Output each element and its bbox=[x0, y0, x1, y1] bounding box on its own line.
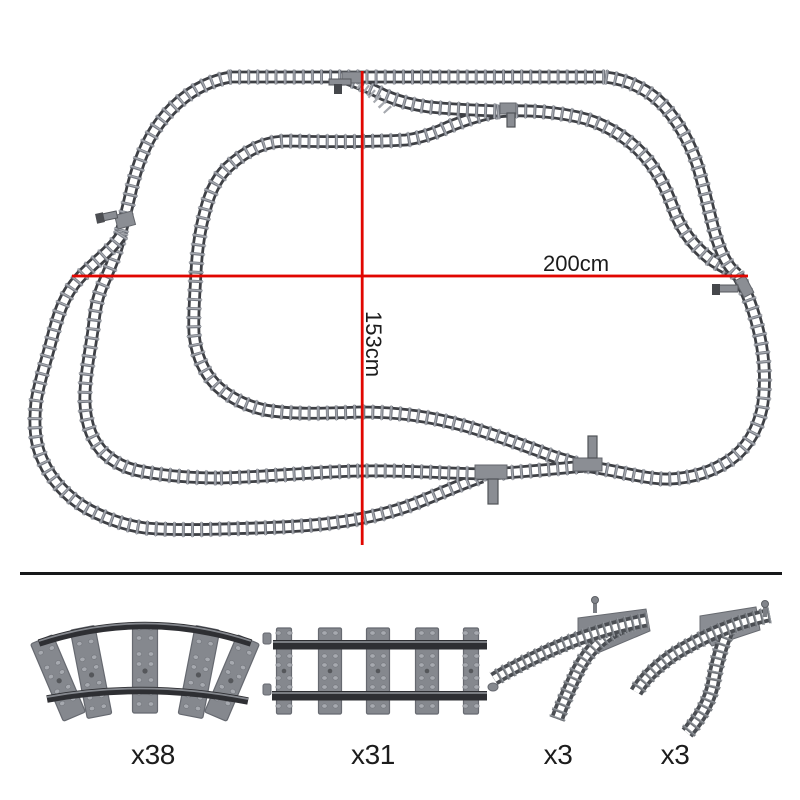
svg-text:x3: x3 bbox=[661, 739, 690, 770]
svg-text:x3: x3 bbox=[544, 739, 573, 770]
svg-text:x38: x38 bbox=[131, 739, 175, 770]
svg-text:200cm: 200cm bbox=[543, 251, 609, 276]
svg-text:x31: x31 bbox=[351, 739, 395, 770]
svg-text:153cm: 153cm bbox=[361, 311, 386, 377]
